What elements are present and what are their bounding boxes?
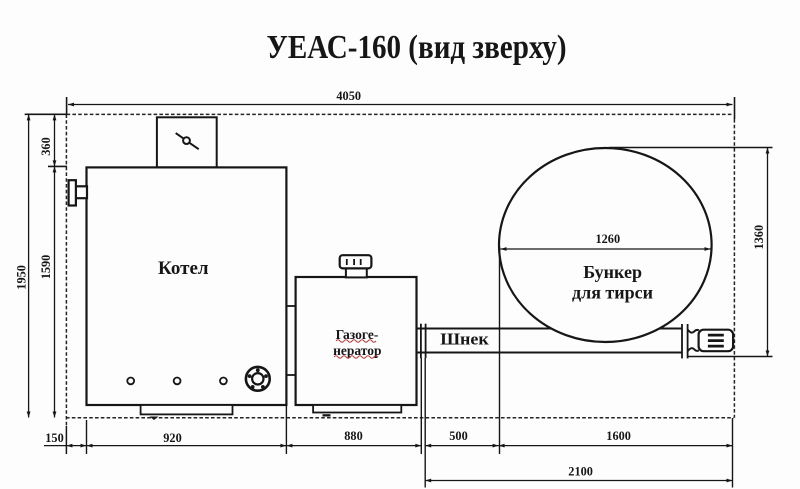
svg-text:1590: 1590 (39, 255, 53, 280)
svg-text:1950: 1950 (14, 265, 28, 290)
svg-text:Котел: Котел (158, 258, 209, 279)
svg-text:Газоге-: Газоге- (336, 327, 379, 342)
svg-text:880: 880 (344, 429, 362, 443)
svg-text:150: 150 (45, 431, 63, 445)
svg-text:для тирси: для тирси (572, 283, 653, 303)
svg-text:920: 920 (163, 431, 181, 445)
svg-text:Бункер: Бункер (583, 262, 642, 282)
svg-text:2100: 2100 (568, 465, 593, 479)
svg-text:1260: 1260 (596, 232, 621, 246)
svg-text:УЕАС-160 (вид зверху): УЕАС-160 (вид зверху) (267, 29, 567, 66)
svg-text:4050: 4050 (336, 89, 361, 103)
svg-text:360: 360 (39, 137, 53, 155)
svg-text:500: 500 (449, 429, 467, 443)
svg-text:нератор: нератор (333, 343, 381, 358)
svg-text:1360: 1360 (752, 225, 766, 250)
svg-text:Шнек: Шнек (440, 330, 489, 349)
svg-text:1600: 1600 (606, 429, 631, 443)
